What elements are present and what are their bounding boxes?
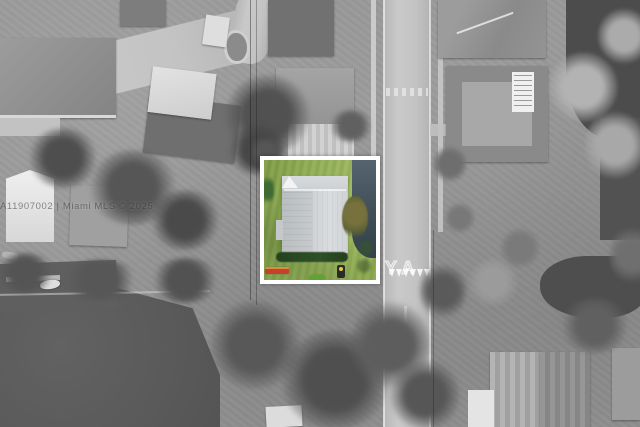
- house-roof: [612, 348, 640, 420]
- pergola-grid: [512, 72, 534, 112]
- tree: [60, 260, 140, 300]
- crosswalk-dashes: [386, 88, 428, 96]
- tree: [390, 360, 460, 427]
- tree: [330, 110, 372, 142]
- roof-left-wing: [282, 190, 312, 253]
- shed-roof: [202, 14, 230, 47]
- marker-dot: [339, 267, 343, 271]
- road-watermark: YA: [385, 258, 420, 279]
- highlighted-lot-boundary: [260, 156, 380, 284]
- tree: [342, 196, 368, 240]
- bush: [500, 228, 540, 268]
- power-line: [433, 230, 434, 427]
- swimming-pool: [224, 30, 250, 64]
- tree: [28, 128, 98, 188]
- house-roof: [268, 0, 334, 56]
- hedge: [276, 252, 348, 262]
- lawn-shadow: [356, 258, 372, 274]
- house-roof: [282, 176, 348, 253]
- house-roof-white: [147, 66, 216, 119]
- bush: [445, 203, 475, 233]
- bush: [433, 146, 467, 182]
- power-line: [250, 0, 251, 300]
- house-roof-ribbed: [490, 352, 540, 427]
- house-roof: [120, 0, 166, 26]
- stored-boat: [265, 267, 289, 274]
- tree: [560, 298, 630, 353]
- highlighted-lot-photo: [264, 160, 376, 280]
- roof-bump-out: [276, 220, 283, 240]
- aerial-listing-photo[interactable]: A11907002 | Miami MLS © 2025 YA: [0, 0, 640, 427]
- tree: [150, 258, 220, 303]
- tree-light: [585, 110, 640, 180]
- mls-watermark: A11907002 | Miami MLS © 2025: [0, 201, 153, 212]
- bush: [308, 274, 326, 280]
- house-roof-ribbed: [540, 352, 590, 427]
- house-roof: [0, 38, 116, 118]
- power-line: [256, 0, 257, 305]
- shrub: [264, 174, 274, 206]
- yard-marker: [337, 265, 345, 278]
- tree: [150, 190, 220, 250]
- shrub: [358, 240, 374, 256]
- house-roof: [438, 0, 546, 58]
- roof-ridge-line: [284, 189, 346, 191]
- gable-trim: [468, 390, 494, 427]
- palm-tree: [420, 262, 466, 320]
